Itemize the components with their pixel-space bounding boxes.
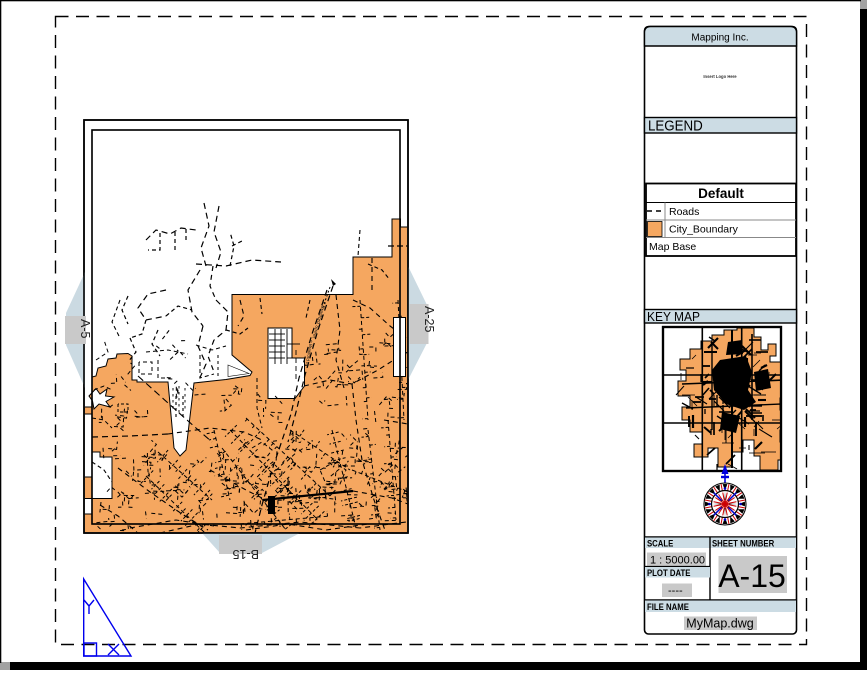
svg-text:Insert Logo Here: Insert Logo Here bbox=[703, 74, 737, 79]
svg-text:KEY MAP: KEY MAP bbox=[647, 310, 700, 325]
svg-text:PLOT DATE: PLOT DATE bbox=[647, 567, 691, 578]
svg-text:SCALE: SCALE bbox=[647, 538, 674, 549]
svg-text:MyMap.dwg: MyMap.dwg bbox=[686, 617, 753, 631]
svg-text:1 : 5000.00: 1 : 5000.00 bbox=[650, 555, 705, 567]
svg-text:Default: Default bbox=[698, 186, 744, 201]
svg-text:----: ---- bbox=[668, 585, 683, 597]
svg-text:City_Boundary: City_Boundary bbox=[669, 224, 739, 236]
svg-text:Map Base: Map Base bbox=[649, 241, 696, 253]
svg-text:Roads: Roads bbox=[669, 206, 699, 218]
svg-text:A-5: A-5 bbox=[78, 319, 92, 339]
svg-text:Mapping Inc.: Mapping Inc. bbox=[691, 33, 748, 44]
svg-text:LEGEND: LEGEND bbox=[648, 117, 703, 134]
svg-text:A-25: A-25 bbox=[422, 306, 436, 332]
svg-text:B-15: B-15 bbox=[233, 547, 259, 561]
svg-text:A-15: A-15 bbox=[718, 558, 786, 594]
svg-text:FILE NAME: FILE NAME bbox=[647, 601, 689, 612]
svg-text:SHEET NUMBER: SHEET NUMBER bbox=[712, 538, 775, 549]
